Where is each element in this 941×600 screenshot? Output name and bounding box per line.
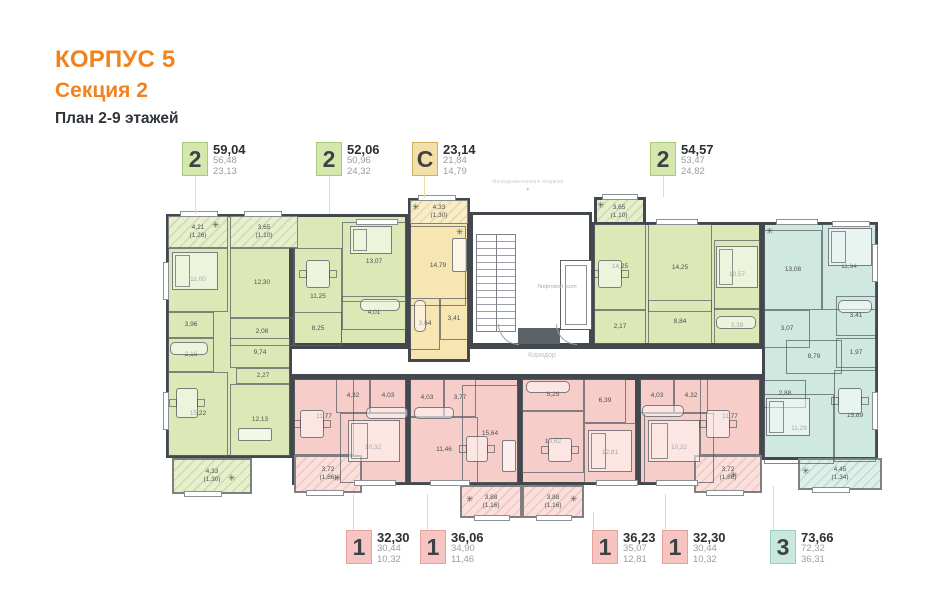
bathtub-furniture — [414, 300, 426, 332]
room-d-living: 14,25 — [648, 224, 712, 312]
bathtub-furniture — [360, 299, 400, 311]
elevator-doors — [518, 328, 560, 344]
balcony-a2: 4,33(1,30) — [172, 458, 252, 494]
callout-apartment-2room-59[interactable]: 2 59,04 56,48 23,13 — [182, 142, 246, 177]
window — [872, 392, 878, 430]
plant-icon: ✳ — [597, 201, 605, 210]
plant-icon: ✳ — [334, 474, 342, 483]
window — [776, 219, 818, 225]
table-furniture — [548, 438, 572, 462]
window — [163, 392, 169, 430]
apartment-type-badge: С — [412, 142, 438, 176]
net-area: 56,48 — [213, 156, 246, 167]
callout-apartment-2room-52[interactable]: 2 52,06 50,96 24,32 — [316, 142, 380, 177]
title-block: КОРПУС 5 Секция 2 План 2-9 этажей — [55, 46, 179, 128]
bathtub-furniture — [414, 407, 454, 419]
callout-apartment-1room-32b[interactable]: 1 32,30 30,44 10,32 — [662, 530, 726, 565]
living-area: 14,79 — [443, 167, 476, 178]
window — [163, 262, 169, 300]
sofa-furniture — [452, 238, 467, 272]
corridor-label: Коридор — [512, 352, 572, 359]
room-e-cabinet: 13,08 — [764, 230, 822, 310]
apartment-type-badge: 2 — [316, 142, 342, 176]
room-a-bedroom2: 12,13 — [230, 384, 290, 456]
room-d-wc: 2,17 — [594, 310, 646, 344]
table-furniture — [466, 436, 488, 462]
bed-furniture — [348, 420, 400, 462]
callout-apartment-1room-36b[interactable]: 1 36,23 35,07 12,81 — [592, 530, 656, 565]
callout-apartment-1room-36a[interactable]: 1 36,06 34,90 11,46 — [420, 530, 484, 565]
window — [430, 480, 470, 486]
callout-leader — [424, 176, 425, 198]
plant-icon: ✳ — [802, 467, 810, 476]
section-title: Секция 2 — [55, 79, 179, 103]
room-b-hall: 8,25 — [294, 312, 342, 346]
window — [596, 480, 638, 486]
table-furniture — [306, 260, 330, 288]
net-area: 30,44 — [693, 544, 726, 555]
room-e-hall: 8,79 — [786, 340, 842, 374]
bathtub-furniture — [716, 316, 756, 329]
living-area: 10,32 — [693, 555, 726, 566]
window — [356, 219, 398, 225]
room-d-hall: 8,84 — [648, 300, 712, 344]
callout-apartment-3room-73[interactable]: 3 73,66 72,32 36,31 — [770, 530, 834, 565]
sofa-furniture — [502, 440, 516, 472]
plant-icon: ✳ — [766, 227, 774, 236]
room-h-hall: 6,39 — [584, 379, 626, 423]
sofa-furniture — [238, 428, 272, 441]
callout-apartment-studio-23[interactable]: С 23,14 21,84 14,79 — [412, 142, 476, 177]
bathtub-furniture — [642, 405, 684, 417]
table-furniture — [706, 410, 730, 438]
living-area: 12,81 — [623, 555, 656, 566]
room-b-kitchen: 12,30 — [230, 248, 294, 318]
bathtub-furniture — [526, 381, 570, 393]
net-area: 30,44 — [377, 544, 410, 555]
window — [474, 515, 510, 521]
living-area: 23,13 — [213, 167, 246, 178]
apartment-type-badge: 2 — [182, 142, 208, 176]
window — [872, 244, 878, 282]
bed-furniture — [648, 420, 700, 462]
callout-apartment-2room-54[interactable]: 2 54,57 53,47 24,82 — [650, 142, 714, 177]
room-e-kitchen: 15,89 — [834, 370, 876, 462]
apartment-type-badge: 2 — [650, 142, 676, 176]
window — [354, 480, 396, 486]
room-b-wc: 2,08 — [230, 318, 294, 346]
floor-plan-canvas: КОРПУС 5 Секция 2 План 2-9 этажей Коридо… — [0, 0, 941, 600]
living-area: 11,46 — [451, 555, 484, 566]
room-a-closet: 2,27 — [236, 368, 290, 384]
callout-leader — [195, 176, 196, 214]
net-area: 50,96 — [347, 156, 380, 167]
apartment-type-badge: 3 — [770, 530, 796, 564]
elevator-shaft — [560, 260, 592, 330]
arrow-down-icon: ▾ — [522, 186, 534, 193]
plant-icon: ✳ — [466, 495, 474, 504]
plant-icon: ✳ — [456, 228, 464, 237]
callout-leader — [593, 512, 594, 530]
callout-leader — [427, 494, 428, 530]
building-title: КОРПУС 5 — [55, 46, 179, 74]
net-area: 34,90 — [451, 544, 484, 555]
table-furniture — [838, 388, 862, 414]
window — [184, 491, 222, 497]
window — [706, 490, 744, 496]
window — [306, 490, 344, 496]
callout-leader — [353, 494, 354, 530]
bathtub-furniture — [170, 342, 208, 355]
callout-apartment-1room-32a[interactable]: 1 32,30 30,44 10,32 — [346, 530, 410, 565]
apartment-type-badge: 1 — [420, 530, 446, 564]
bathtub-furniture — [838, 300, 872, 313]
callout-leader — [773, 486, 774, 530]
room-e-197: 1,97 — [836, 338, 876, 368]
table-furniture — [176, 388, 198, 418]
window — [536, 515, 572, 521]
bed-furniture — [766, 398, 810, 436]
window — [656, 480, 698, 486]
plant-icon: ✳ — [570, 495, 578, 504]
bathtub-furniture — [366, 407, 408, 419]
room-b-loggia: 3,65(1,10) — [230, 216, 298, 248]
apartment-type-badge: 1 — [346, 530, 372, 564]
plant-icon: ✳ — [212, 221, 220, 230]
living-area: 24,82 — [681, 167, 714, 178]
plant-icon: ✳ — [412, 203, 420, 212]
bed-furniture — [588, 430, 632, 472]
living-area: 36,31 — [801, 555, 834, 566]
apartment-type-badge: 1 — [592, 530, 618, 564]
window — [602, 194, 638, 200]
bed-furniture — [716, 246, 758, 288]
table-furniture — [598, 260, 622, 288]
staircase — [476, 234, 516, 332]
living-area: 24,32 — [347, 167, 380, 178]
window — [244, 211, 282, 217]
plant-icon: ✳ — [730, 471, 738, 480]
loggia-note: Незадымляемая лоджия — [468, 179, 588, 185]
window — [180, 211, 218, 217]
callout-leader — [665, 494, 666, 530]
room-c-hall: 3,41 — [440, 298, 468, 340]
table-furniture — [300, 410, 324, 438]
callout-leader — [663, 176, 664, 197]
window — [832, 221, 870, 227]
living-area: 10,32 — [377, 555, 410, 566]
room-a-396: 3,96 — [168, 312, 214, 338]
bed-furniture — [828, 228, 872, 266]
window — [656, 219, 698, 225]
bed-furniture — [172, 252, 218, 290]
plant-icon: ✳ — [228, 474, 236, 483]
bed-furniture — [350, 226, 392, 254]
net-area: 72,32 — [801, 544, 834, 555]
apartment-type-badge: 1 — [662, 530, 688, 564]
net-area: 21,84 — [443, 156, 476, 167]
elevator-hall-label: Лифтовой холл — [534, 284, 580, 291]
window — [812, 487, 850, 493]
plan-title: План 2-9 этажей — [55, 110, 179, 128]
callout-leader — [329, 176, 330, 214]
room-f-hall: 4,32 — [336, 379, 370, 413]
net-area: 53,47 — [681, 156, 714, 167]
corridor — [292, 346, 762, 377]
net-area: 35,07 — [623, 544, 656, 555]
